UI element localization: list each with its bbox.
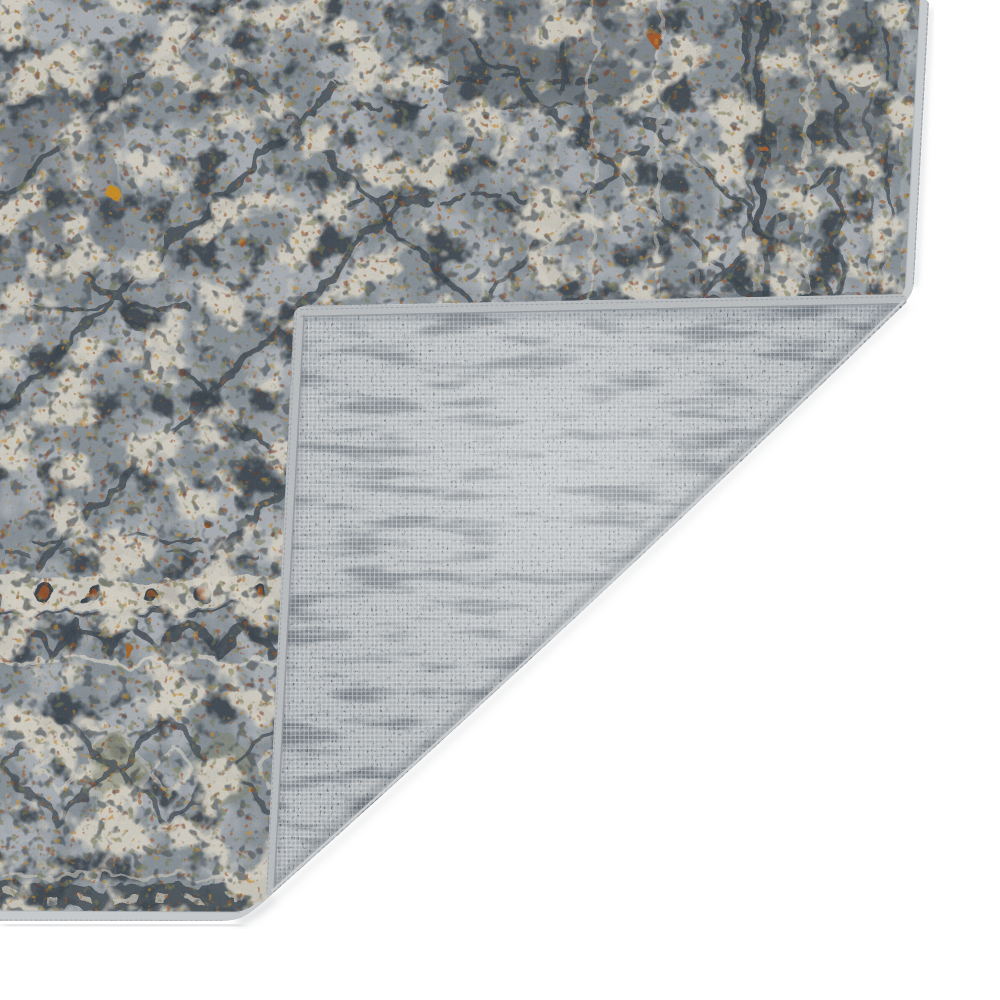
product-photo: [0, 0, 1000, 1000]
rug-photo-svg: [0, 0, 1000, 1000]
shadow-bottom-edge: [6, 925, 238, 927]
